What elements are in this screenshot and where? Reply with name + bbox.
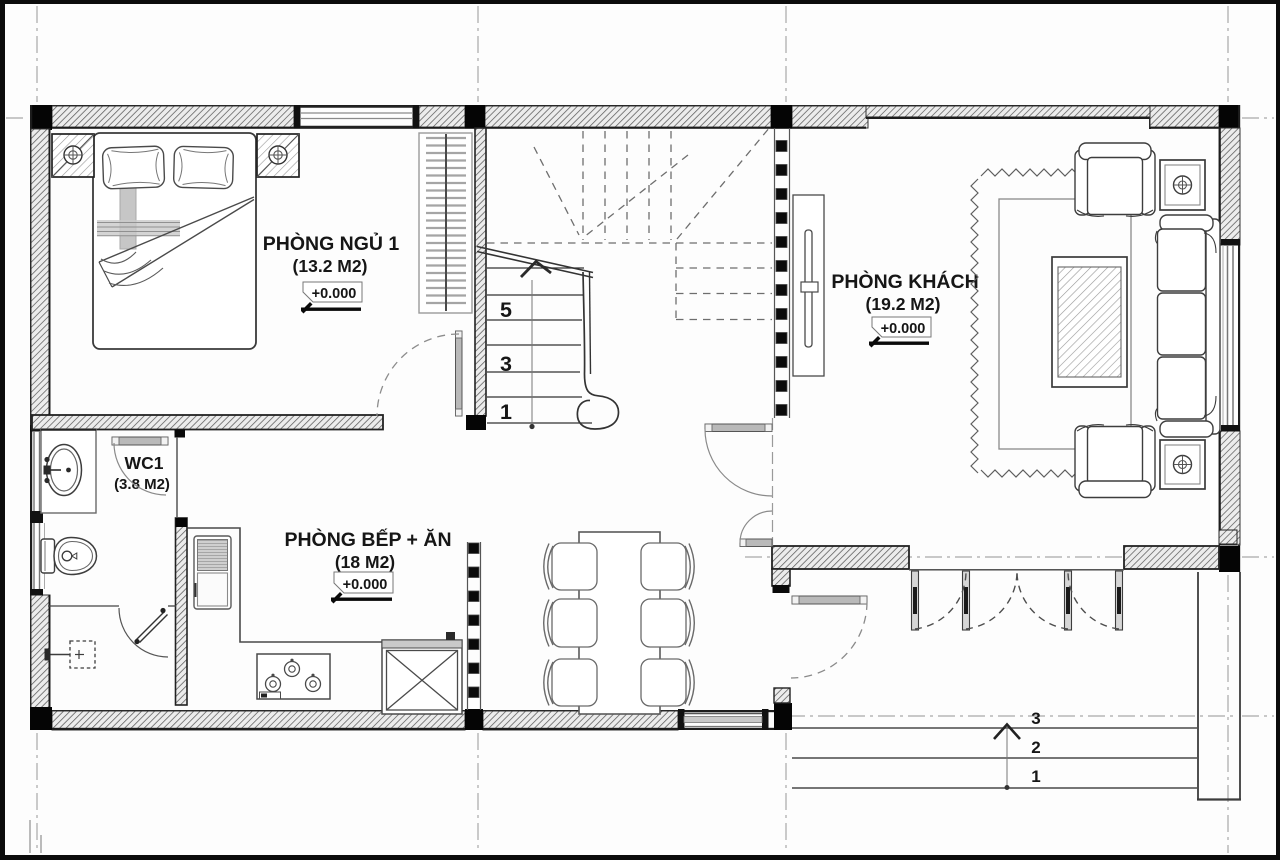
svg-text:+0.000: +0.000 [881,321,926,337]
svg-text:3: 3 [1031,709,1040,728]
svg-text:1: 1 [500,400,512,424]
svg-text:3: 3 [500,352,512,376]
svg-text:(18 M2): (18 M2) [335,552,395,572]
svg-text:PHÒNG KHÁCH: PHÒNG KHÁCH [831,269,978,293]
svg-text:5: 5 [500,298,512,322]
svg-text:PHÒNG NGỦ 1: PHÒNG NGỦ 1 [263,231,400,255]
svg-text:+0.000: +0.000 [312,286,357,302]
svg-text:WC1: WC1 [125,453,164,473]
svg-text:1: 1 [1031,767,1040,786]
svg-text:PHÒNG BẾP + ĂN: PHÒNG BẾP + ĂN [284,527,451,551]
svg-text:+0.000: +0.000 [343,577,388,593]
svg-text:(19.2 M2): (19.2 M2) [866,294,941,314]
svg-text:(3.8 M2): (3.8 M2) [114,476,170,493]
svg-text:(13.2 M2): (13.2 M2) [293,256,368,276]
svg-text:2: 2 [1031,738,1040,757]
